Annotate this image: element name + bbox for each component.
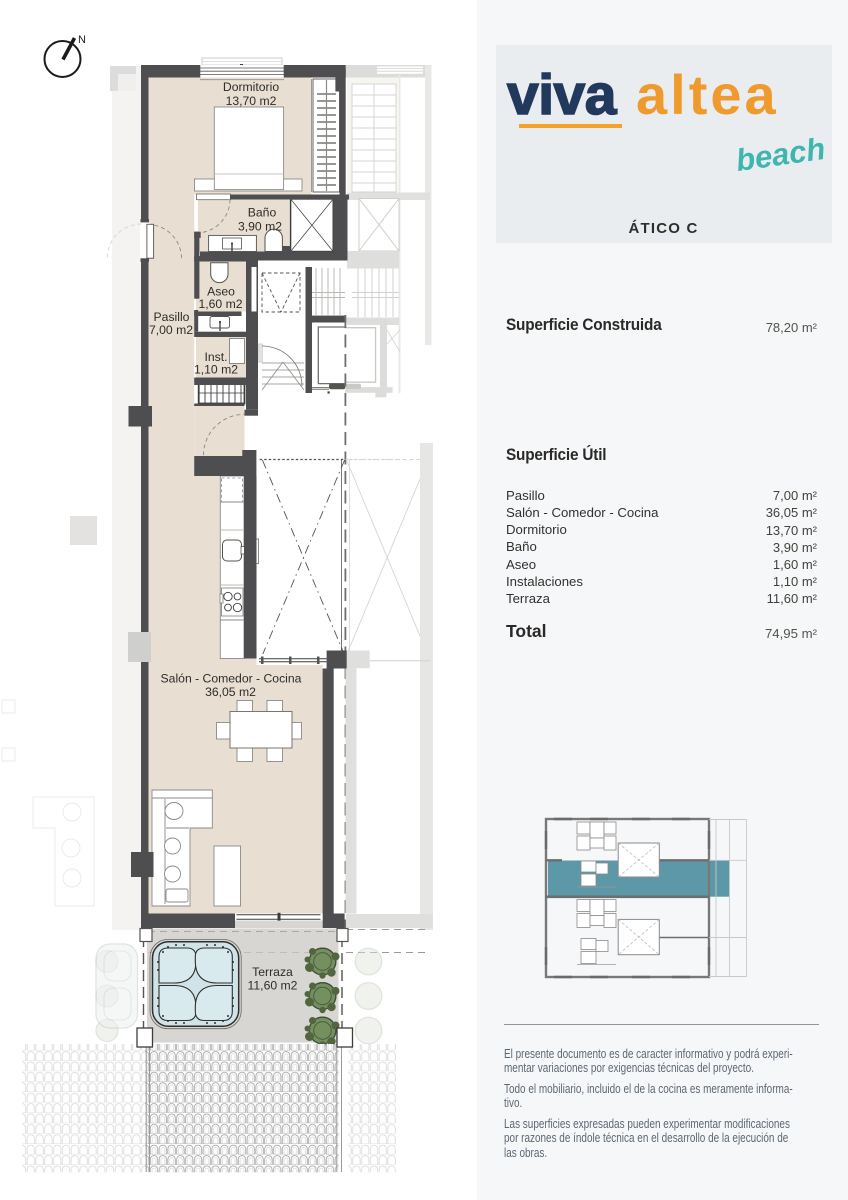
svg-text:Dormitorio: Dormitorio [223,80,279,94]
svg-text:3,90 m2: 3,90 m2 [238,220,282,234]
svg-text:N: N [78,34,86,46]
svg-text:36,05 m2: 36,05 m2 [205,685,256,699]
svg-text:11,60 m2: 11,60 m2 [248,979,298,993]
svg-text:1,10 m2: 1,10 m2 [194,363,238,377]
svg-text:Terraza: Terraza [252,965,293,979]
svg-text:Salón - Comedor - Cocina: Salón - Comedor - Cocina [161,672,302,686]
svg-text:Pasillo: Pasillo [154,310,190,324]
svg-text:1,60 m2: 1,60 m2 [198,297,242,311]
svg-text:13,70 m2: 13,70 m2 [226,94,277,108]
svg-text:7,00 m2: 7,00 m2 [149,323,193,337]
svg-text:Baño: Baño [248,206,277,220]
